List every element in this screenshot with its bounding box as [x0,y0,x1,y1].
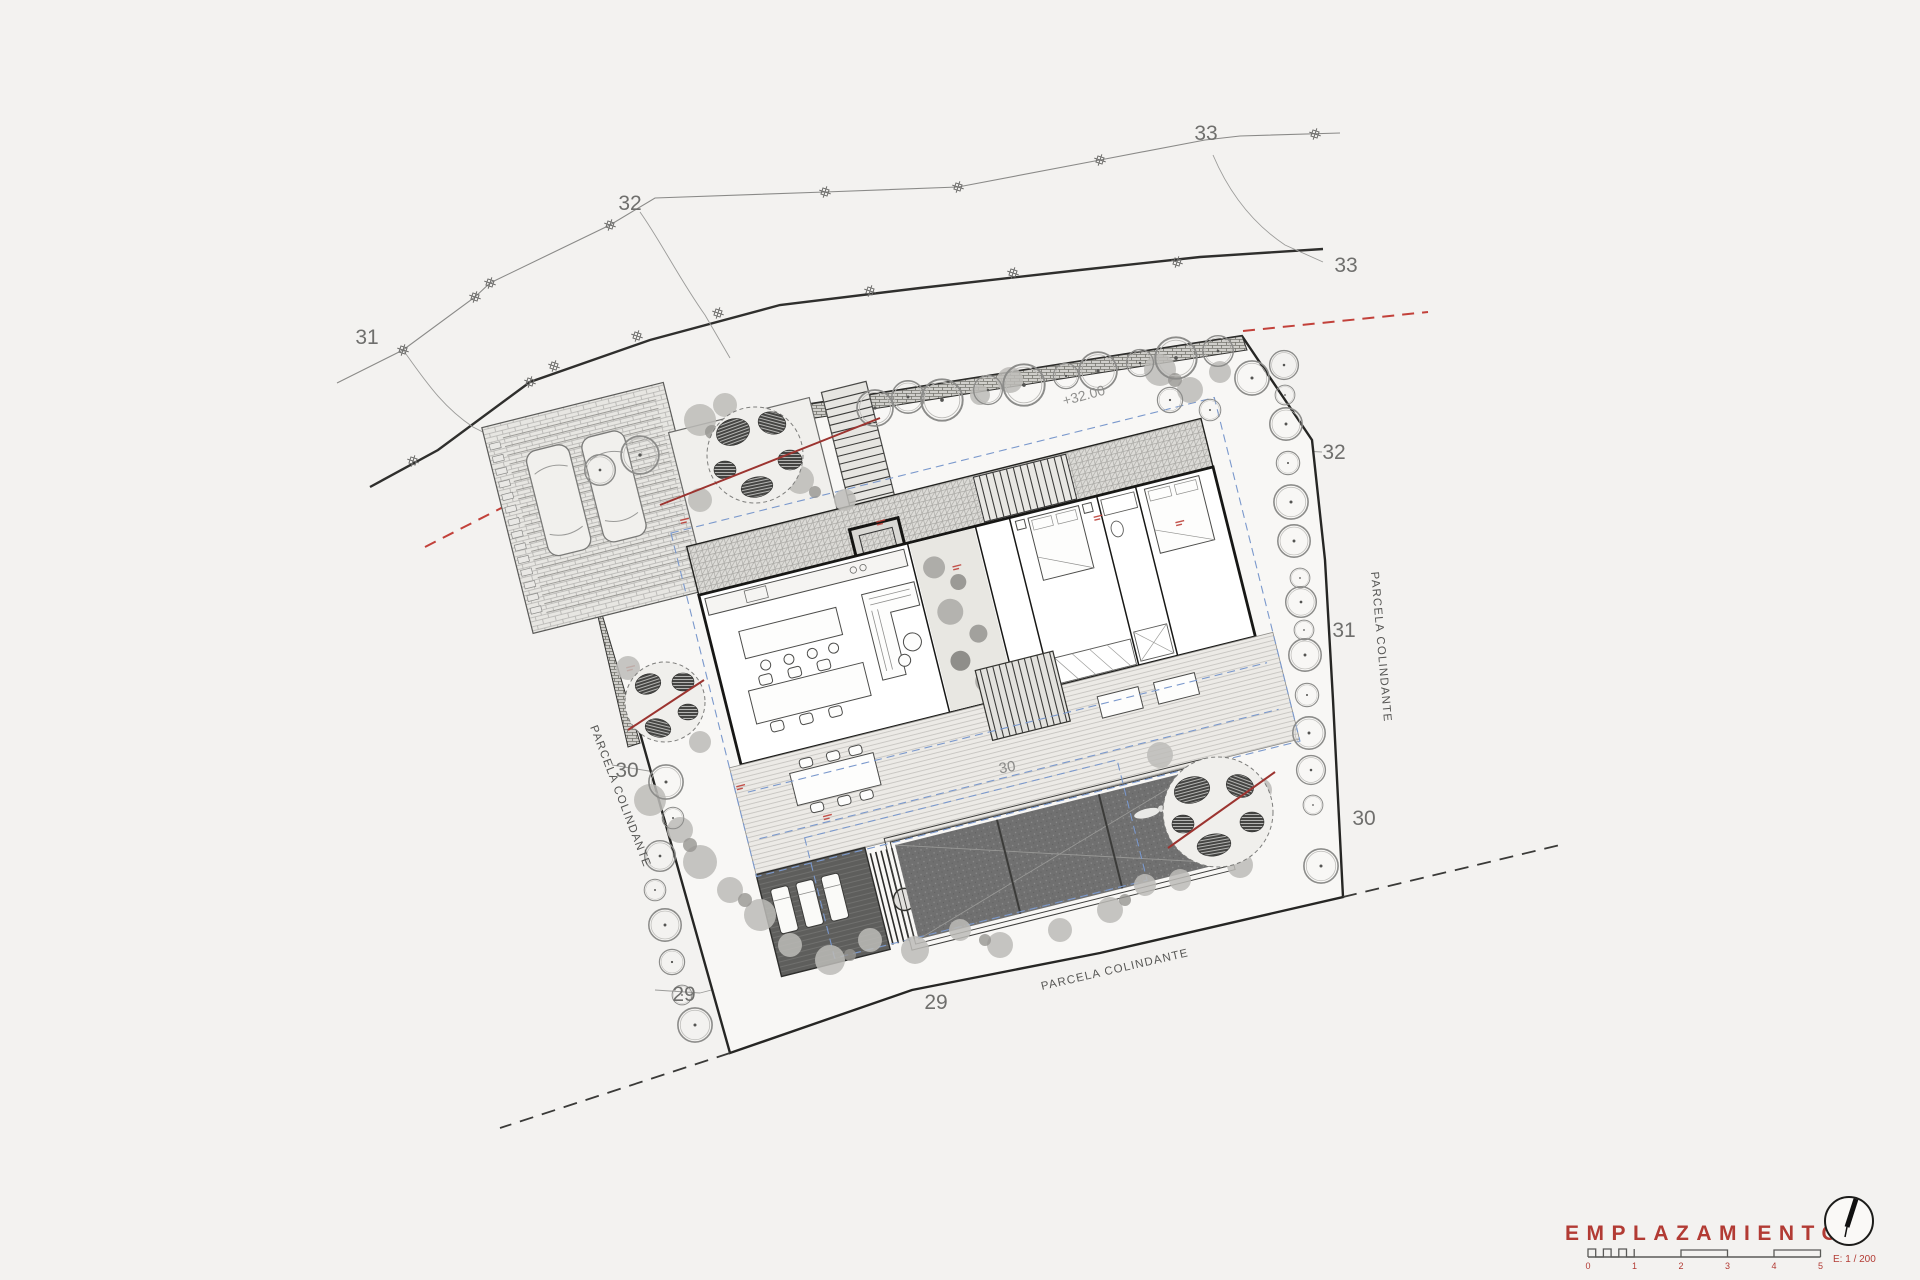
scale-tick: 5 [1818,1261,1823,1271]
scale-tick: 3 [1725,1261,1730,1271]
contour-label-33-top: 33 [1194,122,1217,145]
contour-label-29-left: 29 [672,983,695,1006]
scale-tick: 1 [1632,1261,1637,1271]
contour-label-32-top: 32 [618,192,641,215]
contour-label-32-right: 32 [1322,441,1345,464]
scale-tick: 2 [1678,1261,1683,1271]
contour-label-31-left: 31 [355,326,378,349]
scale-tick: 0 [1585,1261,1590,1271]
contour-label-30-right: 30 [1352,807,1375,830]
site-plan-drawing: 31 32 33 33 32 31 30 30 29 29 30 +32.00 … [0,0,1920,1280]
contour-label-33-right: 33 [1334,254,1357,277]
large-tree [625,662,705,742]
scale-ratio-label: E: 1 / 200 [1833,1254,1876,1265]
sheet-title: EMPLAZAMIENTO [1565,1222,1845,1245]
contour-label-30-deck: 30 [998,758,1017,778]
site-plan-sheet: 31 32 33 33 32 31 30 30 29 29 30 +32.00 … [0,0,1920,1280]
contour-label-29-bottom: 29 [924,991,947,1014]
scale-tick: 4 [1771,1261,1776,1271]
north-arrow-icon [1825,1197,1873,1245]
contour-label-31-right: 31 [1332,619,1355,642]
